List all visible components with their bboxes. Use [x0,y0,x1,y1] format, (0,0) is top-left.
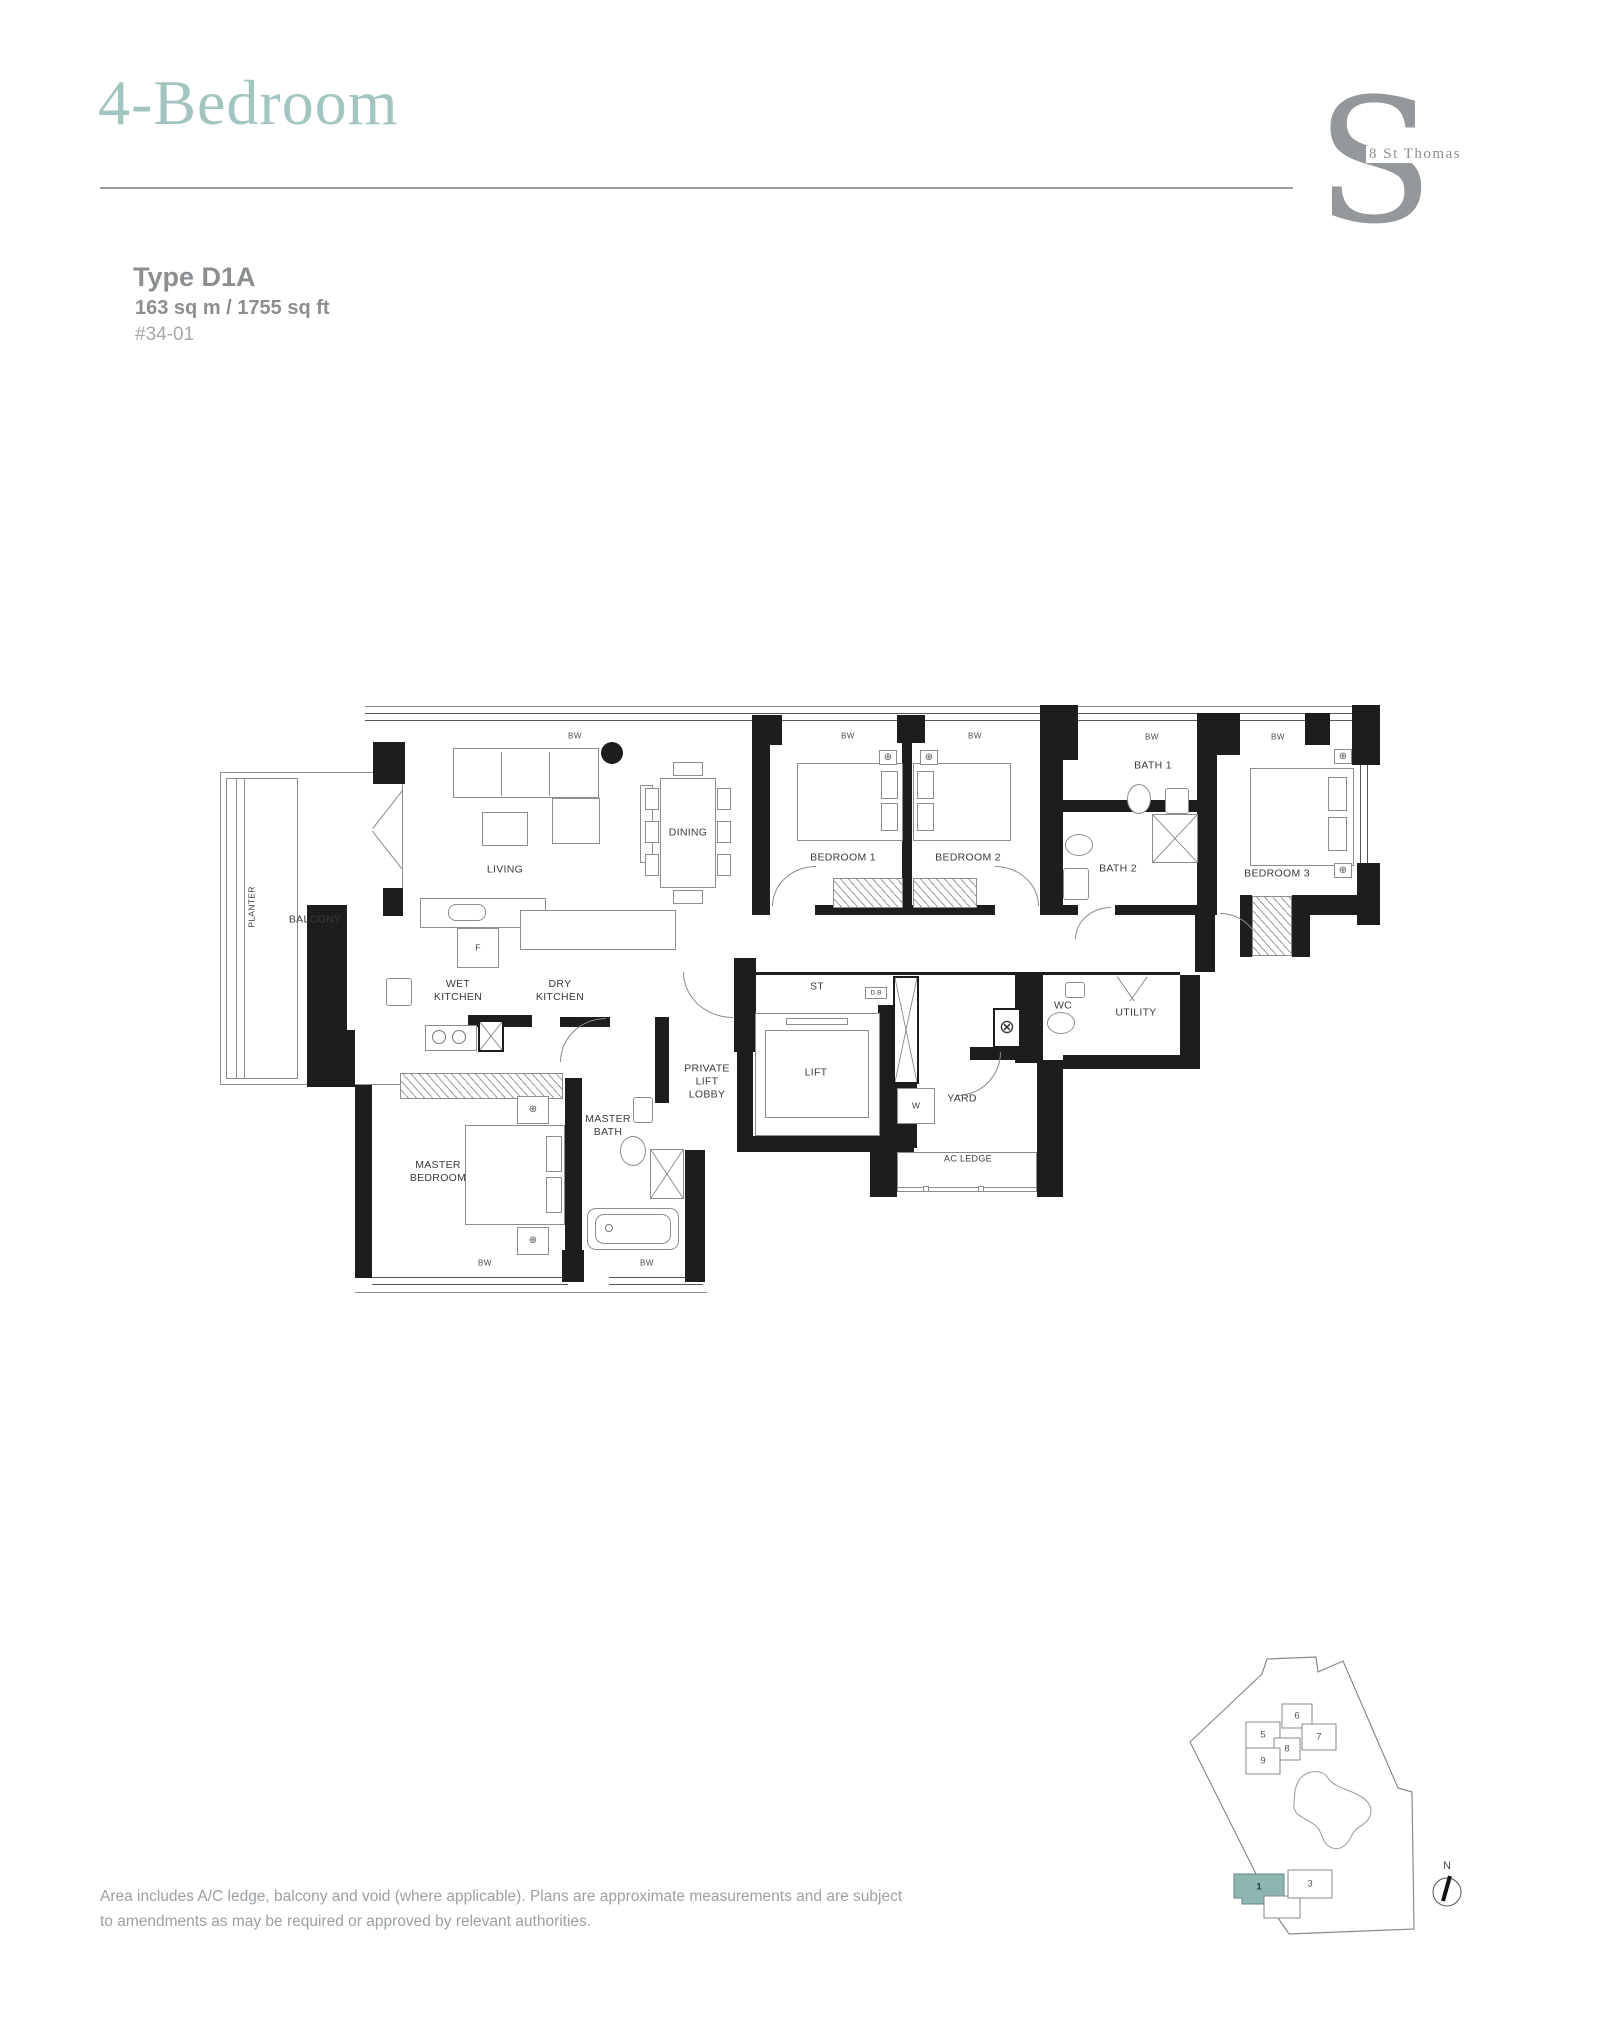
riser-fan-icon [993,1008,1021,1048]
wall [355,1085,372,1278]
bw-label: BW [568,730,582,743]
sink [1065,982,1085,998]
toilet [1047,1012,1075,1034]
bifold-door [1129,976,1147,1001]
sofa-chaise [552,798,600,844]
balcony-wall [402,772,403,907]
room-label-bedroom-3: BEDROOM 3 [1244,868,1310,881]
lift-door [786,1018,848,1025]
nightstand [517,1096,549,1124]
room-label-utility: UTILITY [1115,1007,1156,1020]
wall [878,1005,894,1140]
wall [1197,742,1217,915]
shower [650,1149,684,1199]
wardrobe [833,878,903,908]
pillow [546,1136,562,1172]
wardrobe [1252,896,1292,956]
sliding-door [372,830,403,869]
room-label-ac-ledge: AC LEDGE [944,1153,992,1166]
balcony-wall [220,772,221,1085]
site-unit-label-5: 5 [1260,1730,1265,1741]
door-arc-bedroom1 [772,866,816,906]
room-label-lift: LIFT [805,1067,828,1080]
wall-light-icon [920,750,938,765]
brochure-page: 4-Bedroom S 8 St Thomas Type D1A 163 sq … [0,0,1600,2042]
room-label-master-bath: MASTER BATH [585,1113,631,1139]
ac-ledge-line [897,1187,1037,1188]
sofa-seam [501,752,502,796]
pillow [546,1177,562,1213]
bay-window [1360,764,1368,864]
ac-ledge-tick [923,1186,929,1192]
dining-chair [717,788,731,810]
dining-chair [645,854,659,876]
wall [565,1078,582,1254]
room-label-st: ST [810,981,824,994]
room-label-bedroom-2: BEDROOM 2 [935,852,1001,865]
wall-light-icon [879,750,897,765]
disclaimer-line-2: to amendments as may be required or appr… [100,1909,1520,1934]
kitchen-shaft [478,1020,504,1052]
brand-logo: S 8 St Thomas [1306,72,1526,262]
planter-line [244,778,245,1079]
wall [1115,905,1197,915]
room-label-bedroom-1: BEDROOM 1 [810,852,876,865]
toilet [1065,834,1093,856]
title-divider [100,187,1293,189]
toilet [620,1136,646,1166]
dining-chair [717,821,731,843]
wall [1310,895,1380,915]
logo-text: 8 St Thomas [1366,146,1464,163]
wall [1352,705,1380,765]
wall [1063,1055,1200,1069]
planter-line [236,778,237,1079]
wall [1292,895,1310,957]
dining-chair [717,854,731,876]
room-label-master-bedroom: MASTER BEDROOM [410,1159,466,1185]
wall-light-icon [1334,749,1352,764]
page-title: 4-Bedroom [98,66,399,140]
site-unit-label-6: 6 [1294,1711,1299,1722]
pillow [881,771,898,799]
nightstand [517,1227,549,1255]
wall [902,723,912,915]
wall [655,1017,669,1103]
sink [633,1097,653,1123]
door-arc-bath2 [1075,907,1111,939]
room-label-wc: WC [1054,1000,1072,1013]
wall [1037,1060,1063,1197]
room-label-planter: PLANTER [246,886,259,927]
room-label-dry-kitchen: DRY KITCHEN [536,978,584,1004]
north-label: N [1443,1860,1451,1872]
door-arc-bedroom2 [995,866,1039,906]
site-unit-label-7: 7 [1316,1732,1321,1743]
kitchen-island [520,910,676,950]
wardrobe [913,878,977,908]
bw-label: BW [1145,731,1159,744]
plan-outline [365,706,1355,707]
door-arc-lobby [683,972,733,1018]
bathtub-drain [605,1224,613,1232]
unit-number: #34-01 [135,324,194,346]
sofa [453,748,599,798]
pillow [917,803,934,831]
wall [685,1150,705,1282]
wall [1040,723,1063,915]
burner [432,1030,446,1044]
wall [1305,713,1330,745]
bw-label: BW [841,730,855,743]
room-label-private-lift-lobby: PRIVATE LIFT LOBBY [684,1063,729,1102]
floor-plan: LIVINGDININGBALCONYPLANTERWET KITCHENDRY… [220,700,1385,1310]
washer-tag: W [912,1100,920,1113]
kitchen-sink [448,904,486,921]
column [601,742,623,764]
unit-area: 163 sq m / 1755 sq ft [135,297,330,320]
room-label-bath-1: BATH 1 [1134,760,1172,773]
plan-outline [355,1292,707,1293]
wall [870,1150,897,1197]
disclaimer: Area includes A/C ledge, balcony and voi… [100,1884,1520,1934]
bw-label: BW [478,1257,492,1270]
wall [734,958,756,1052]
pillow [881,803,898,831]
sink [1165,788,1189,814]
site-unit-label-8: 8 [1284,1744,1289,1755]
wall-light-icon [1334,863,1352,878]
unit-type: Type D1A [133,262,256,293]
site-pool [1294,1772,1371,1849]
sofa-seam [549,752,550,796]
wet-kitchen-sink [386,978,412,1006]
wall [307,1030,355,1087]
ac-ledge-tick [978,1186,984,1192]
dining-chair [673,762,703,776]
room-label-balcony: BALCONY [289,914,341,927]
dining-chair [673,890,703,904]
sliding-door [372,790,403,829]
room-label-living: LIVING [487,864,523,877]
room-label-wet-kitchen: WET KITCHEN [434,978,482,1004]
pillow [917,771,934,799]
room-label-yard: YARD [947,1093,977,1106]
bw-label: BW [640,1257,654,1270]
bay-window [372,1277,568,1285]
wall [562,1250,584,1282]
toilet [1127,784,1151,814]
door-arc-yard [957,1052,1001,1096]
wall [752,723,770,915]
coffee-table [482,812,528,846]
wall [373,742,405,784]
room-label-bath-2: BATH 2 [1099,863,1137,876]
dining-chair [645,821,659,843]
pillow [1328,777,1347,811]
pillow [1328,817,1347,851]
dining-chair [645,788,659,810]
room-label-dining: DINING [666,827,711,840]
site-unit-label-9: 9 [1260,1756,1265,1767]
wall [1357,863,1380,925]
burner [452,1030,466,1044]
wall [1063,905,1078,915]
sink [1063,868,1089,900]
bw-label: BW [968,730,982,743]
wall [738,972,1180,975]
shower [1152,814,1198,863]
disclaimer-line-1: Area includes A/C ledge, balcony and voi… [100,1884,1520,1909]
bw-label: BW [1271,731,1285,744]
wall [1195,913,1215,972]
riser-shaft [893,976,919,1084]
fridge-tag: F [475,942,481,955]
distribution-board-tag: D.B [871,987,882,1000]
wall [383,888,403,916]
